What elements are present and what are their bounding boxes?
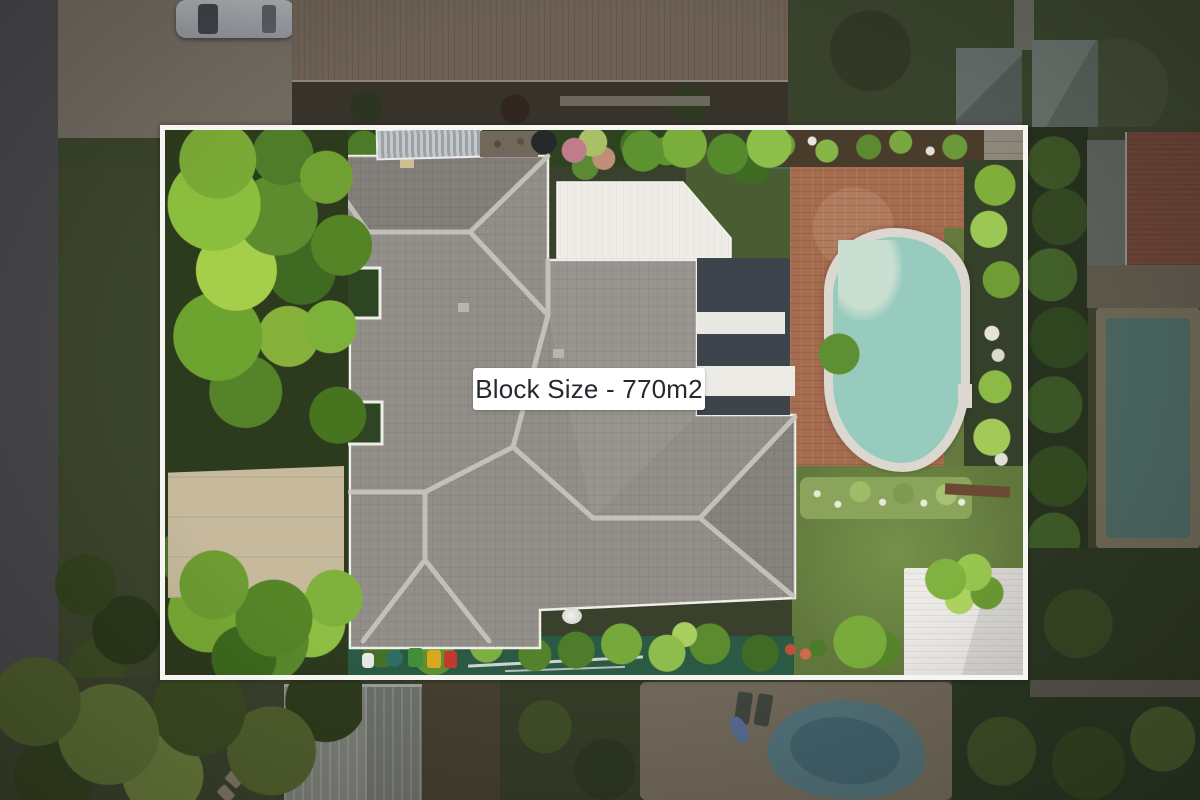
- neighbor-pool-bottom-deep: [786, 710, 904, 791]
- boundary-hedge-right: [1026, 127, 1088, 575]
- neighbor-shed-1: [956, 48, 1022, 127]
- neighbor-deck-top: [292, 82, 788, 127]
- neighbor-pool-right-water: [1106, 318, 1190, 538]
- neighbor-deck-bottom: [422, 682, 502, 800]
- neighbor-roof-top: [292, 0, 788, 82]
- car-rear-window: [262, 5, 276, 33]
- neighbor-pool-right: [1096, 308, 1200, 548]
- neighbor-roof-right: [1125, 132, 1200, 265]
- neighbor-shed-2: [1032, 40, 1098, 127]
- neighbor-path-top-right: [1014, 0, 1034, 50]
- neighbor-path-bottom-right: [1030, 680, 1200, 697]
- car-windshield: [198, 4, 218, 34]
- aerial-photo: Block Size - 770m2: [0, 0, 1200, 800]
- neighbor-garden-bottom: [500, 678, 650, 800]
- neighbor-paving-right: [1087, 265, 1200, 308]
- block-size-label: Block Size - 770m2: [473, 368, 705, 410]
- neighbor-trellis: [560, 96, 710, 106]
- parked-car: [176, 0, 294, 38]
- neighbor-wall-right: [1087, 140, 1125, 265]
